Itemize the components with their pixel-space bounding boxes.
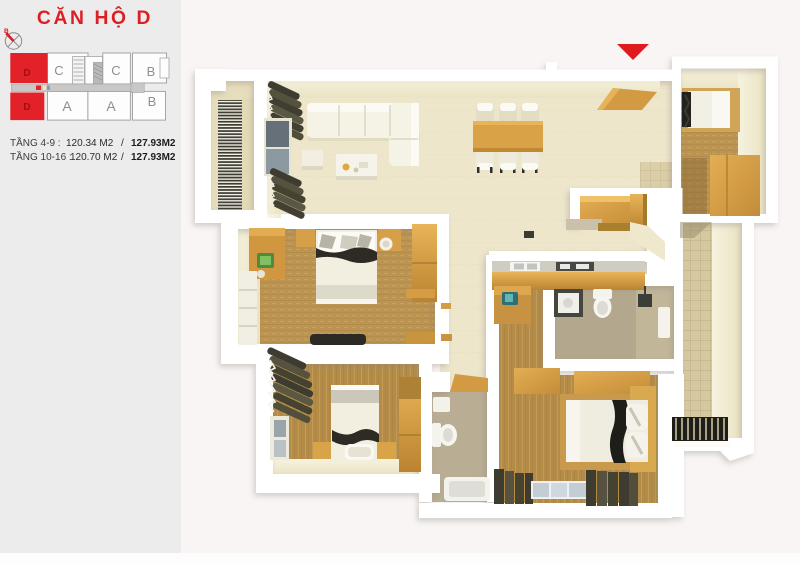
svg-text:C: C: [54, 63, 63, 78]
svg-text:C: C: [111, 63, 120, 78]
svg-text:127.93M2: 127.93M2: [131, 138, 176, 149]
svg-text:CĂN HỘ D: CĂN HỘ D: [37, 5, 153, 29]
svg-text:D: D: [23, 68, 30, 79]
svg-text:B: B: [148, 94, 157, 109]
svg-text:120.70 M2: 120.70 M2: [70, 152, 118, 163]
svg-text:TẦNG 4-9 :: TẦNG 4-9 :: [10, 136, 61, 149]
svg-text:B: B: [147, 64, 156, 79]
svg-text:127.93M2: 127.93M2: [131, 152, 176, 163]
svg-text:TẦNG 10-16 :: TẦNG 10-16 :: [10, 150, 72, 163]
svg-text:/: /: [121, 152, 124, 163]
svg-text:A: A: [62, 98, 72, 114]
svg-text:D: D: [23, 102, 30, 113]
svg-text:/: /: [121, 138, 124, 149]
svg-text:120.34 M2: 120.34 M2: [66, 138, 114, 149]
svg-text:A: A: [106, 98, 116, 114]
svg-text:B: B: [4, 28, 9, 35]
